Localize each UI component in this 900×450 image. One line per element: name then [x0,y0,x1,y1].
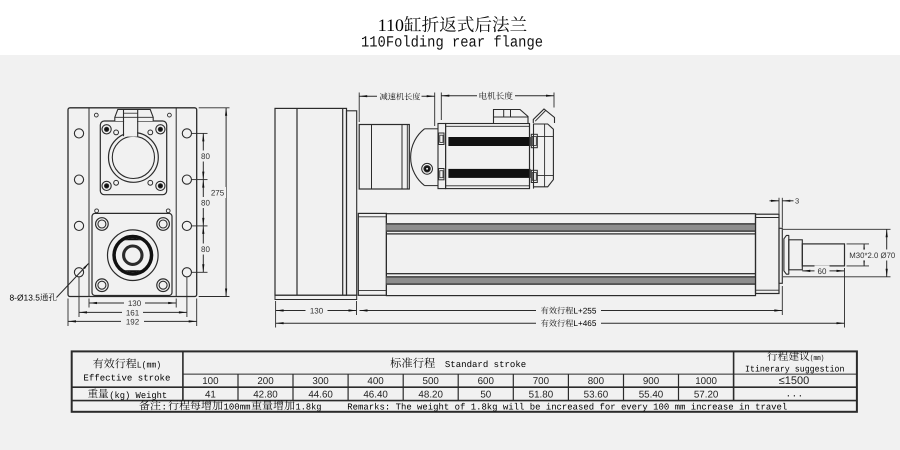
svg-text:41: 41 [205,389,216,400]
svg-text:500: 500 [423,376,440,387]
svg-text:110Folding rear flange: 110Folding rear flange [361,34,543,52]
svg-text:Standard stroke: Standard stroke [445,360,526,370]
svg-text:(kg) Weight: (kg) Weight [109,390,167,401]
svg-text:300: 300 [312,376,329,387]
svg-text:1000: 1000 [695,376,717,387]
svg-text::: : [162,401,167,412]
svg-text:130: 130 [128,299,142,308]
svg-text:50: 50 [480,389,491,400]
svg-text:8-Ø13.5: 8-Ø13.5 [10,292,41,302]
svg-text:...: ... [785,390,803,401]
svg-text:600: 600 [478,376,495,387]
svg-text:55.40: 55.40 [639,389,664,400]
svg-text:57.20: 57.20 [694,389,719,400]
svg-text:46.40: 46.40 [363,389,388,400]
svg-text:80: 80 [201,245,210,254]
svg-text:Effective stroke: Effective stroke [83,373,170,384]
svg-text:700: 700 [533,376,550,387]
svg-text:M30*2.0 Ø70: M30*2.0 Ø70 [849,251,896,260]
svg-text:100mm: 100mm [224,401,251,412]
svg-text:200: 200 [257,376,274,387]
svg-text:L+255: L+255 [573,307,596,316]
svg-text:80: 80 [201,199,210,208]
svg-text:Itinerary suggestion: Itinerary suggestion [745,364,845,374]
svg-text:1.8kg: 1.8kg [296,401,322,412]
svg-text:800: 800 [588,376,605,387]
svg-text:192: 192 [126,317,140,326]
svg-text:60: 60 [818,267,827,276]
svg-text:3: 3 [795,197,799,206]
svg-text:53.60: 53.60 [584,389,609,400]
svg-text:(mm): (mm) [810,354,824,363]
svg-text:51.80: 51.80 [529,389,554,400]
svg-text:275: 275 [211,189,225,198]
svg-text:Remarks: The weight of 1.8kg w: Remarks: The weight of 1.8kg will be inc… [347,401,787,412]
svg-text:900: 900 [643,376,660,387]
svg-text:L+465: L+465 [573,319,596,328]
svg-text:44.60: 44.60 [308,389,333,400]
svg-text:400: 400 [367,376,384,387]
svg-text:80: 80 [201,152,210,161]
svg-text:130: 130 [310,307,324,316]
svg-text:L(mm): L(mm) [137,361,161,371]
svg-text:42.80: 42.80 [253,389,278,400]
svg-text:110: 110 [378,15,404,35]
svg-text:≤1500: ≤1500 [779,375,810,387]
svg-text:100: 100 [202,376,219,387]
svg-text:48.20: 48.20 [418,389,443,400]
